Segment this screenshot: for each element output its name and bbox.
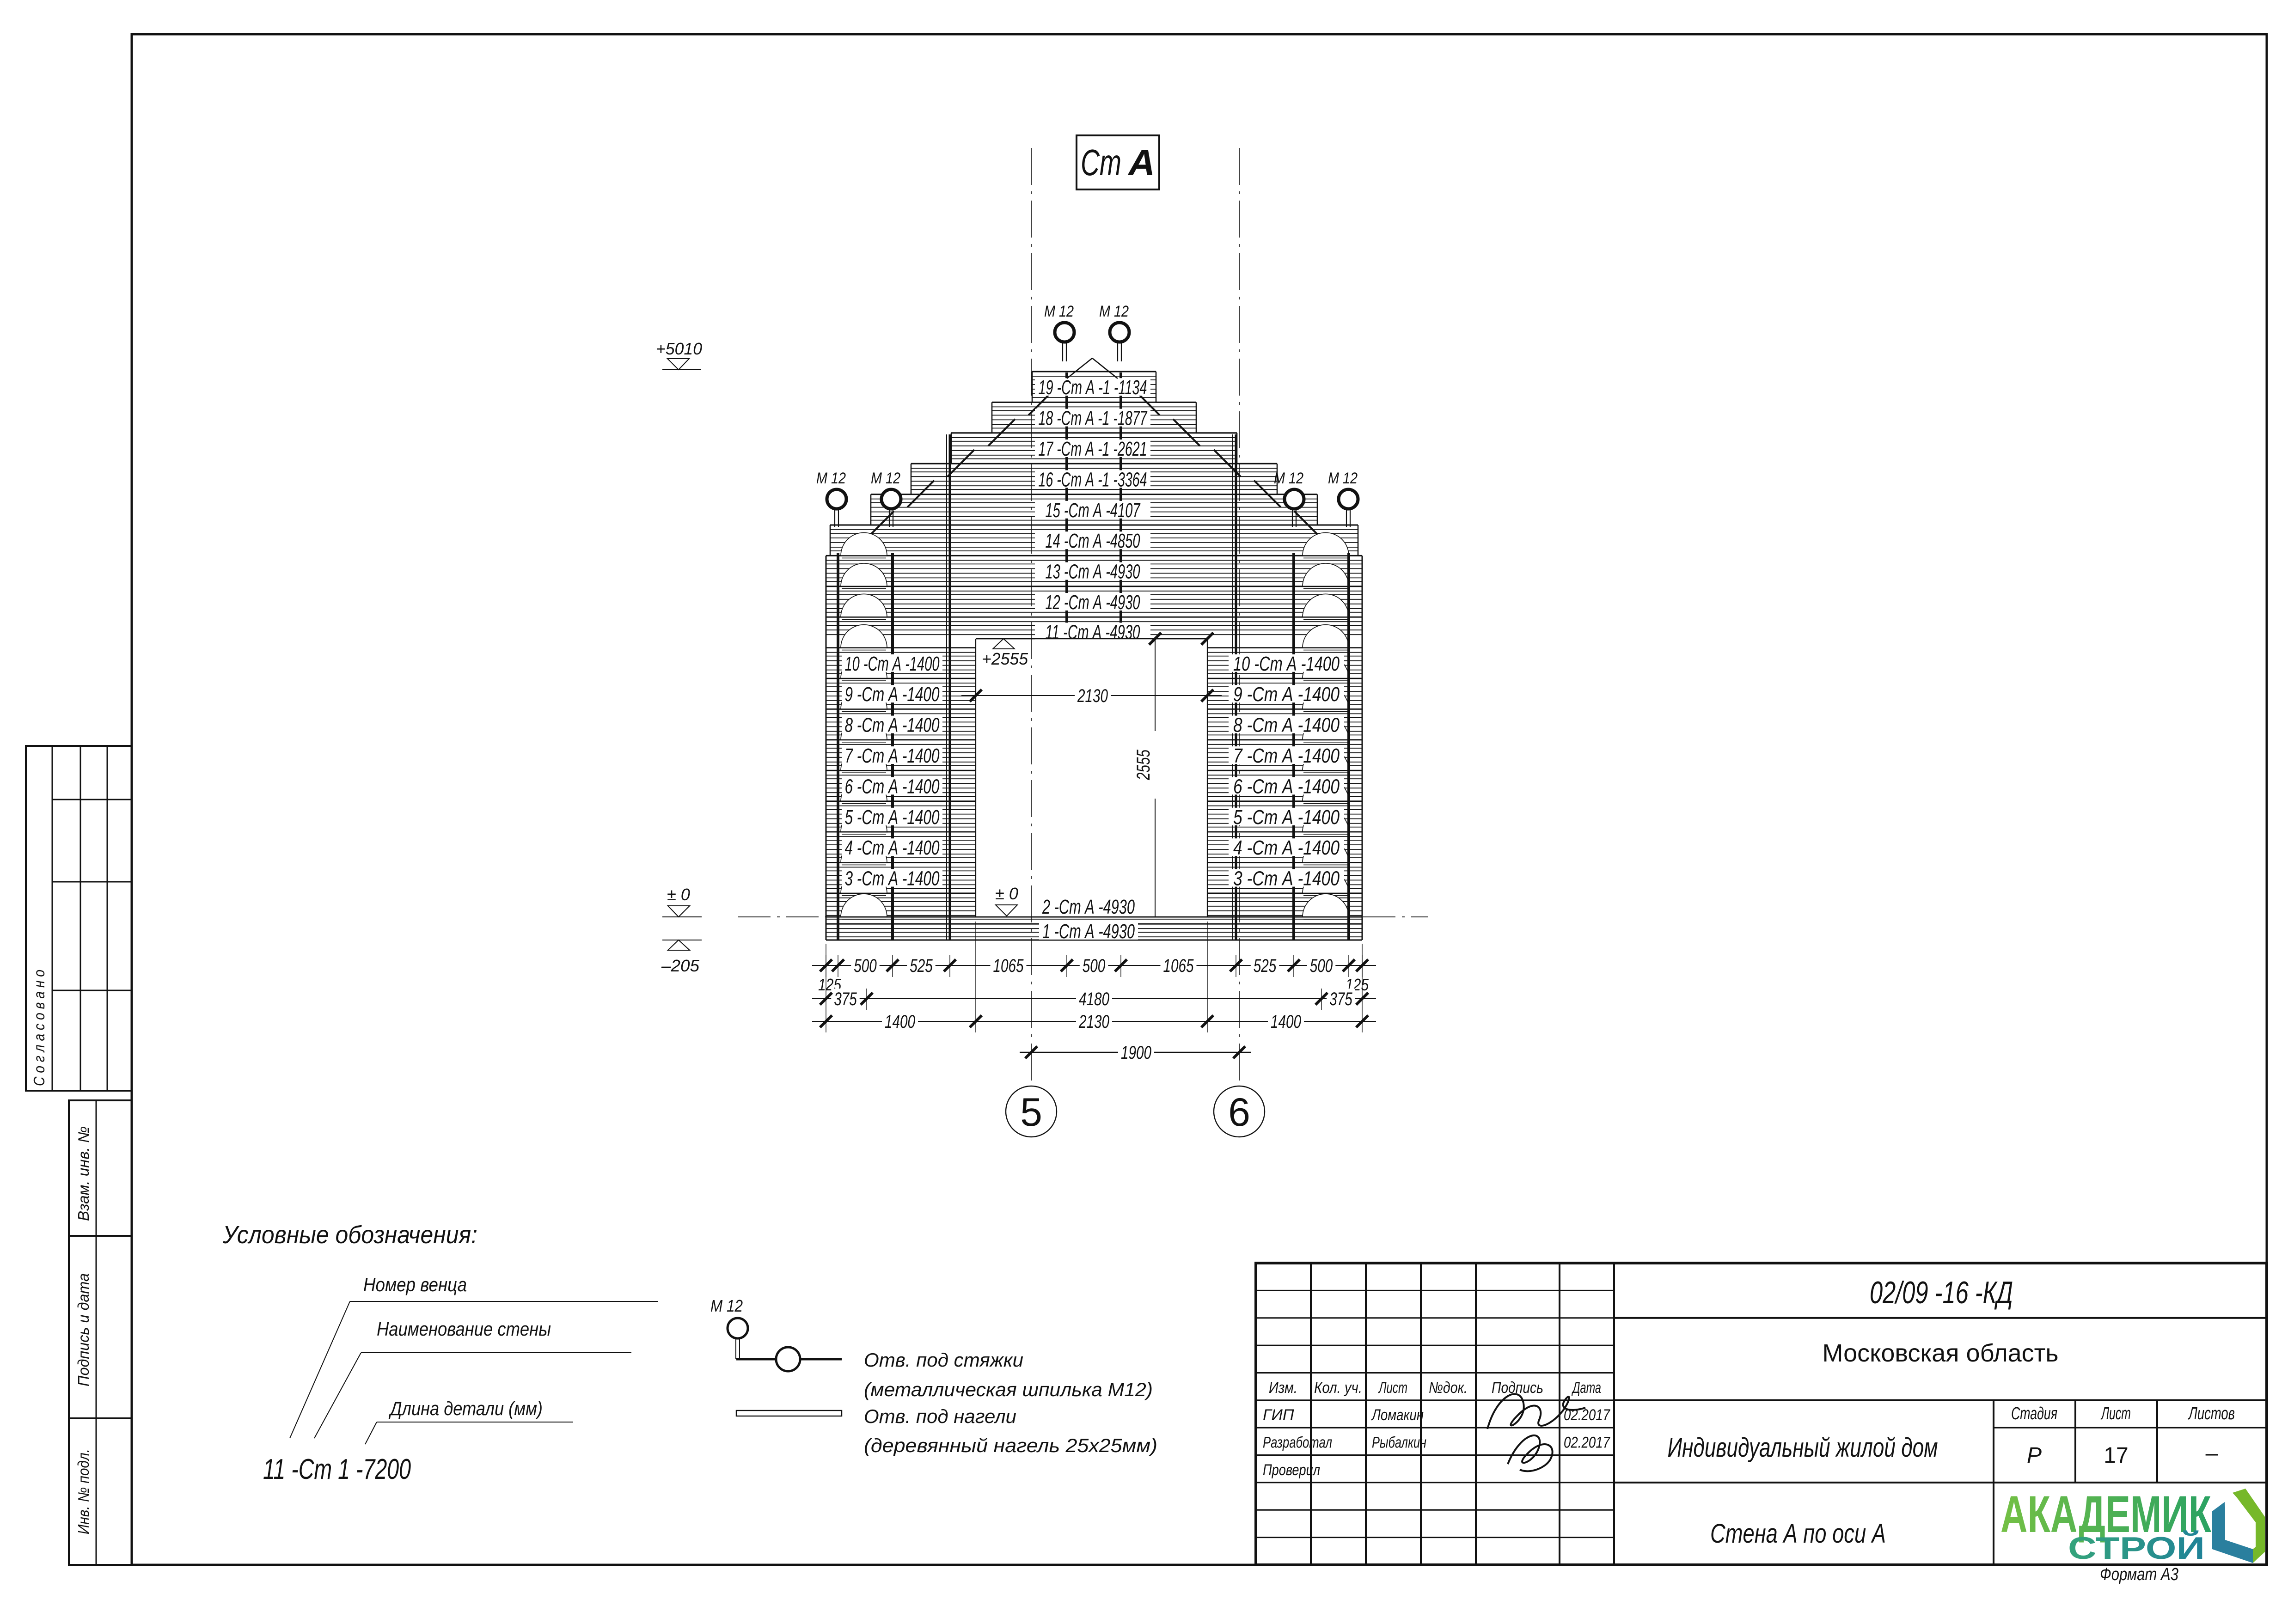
- svg-text:375: 375: [834, 989, 857, 1009]
- svg-text:18 -Ст А -1 -1877: 18 -Ст А -1 -1877: [1039, 407, 1148, 430]
- svg-text:8 -Ст А -1400: 8 -Ст А -1400: [845, 714, 940, 737]
- svg-text:2130: 2130: [1077, 686, 1108, 706]
- svg-text:5: 5: [1020, 1090, 1042, 1135]
- svg-text:7 -Ст А -1400: 7 -Ст А -1400: [845, 745, 940, 767]
- svg-text:6 -Ст А -1400: 6 -Ст А -1400: [845, 775, 940, 798]
- svg-text:М 12: М 12: [710, 1296, 743, 1315]
- svg-text:3 -Ст А -1400: 3 -Ст А -1400: [1233, 867, 1340, 890]
- svg-text:Дата: Дата: [1571, 1379, 1601, 1397]
- svg-text:Изм.: Изм.: [1269, 1379, 1297, 1397]
- svg-text:12 -Ст А -4930: 12 -Ст А -4930: [1046, 591, 1140, 614]
- svg-text:–205: –205: [661, 956, 700, 975]
- svg-text:№док.: №док.: [1429, 1379, 1468, 1397]
- svg-text:+5010: +5010: [656, 339, 702, 358]
- svg-text:Листов: Листов: [2188, 1404, 2235, 1423]
- svg-text:19 -Ст А -1 -1134: 19 -Ст А -1 -1134: [1039, 376, 1147, 399]
- svg-text:1065: 1065: [993, 956, 1024, 976]
- svg-text:02/09 -16 -КД: 02/09 -16 -КД: [1870, 1275, 2013, 1310]
- svg-text:14 -Ст А -4850: 14 -Ст А -4850: [1046, 530, 1140, 552]
- svg-text:+2555: +2555: [982, 649, 1028, 668]
- svg-text:8 -Ст А -1400: 8 -Ст А -1400: [1233, 714, 1340, 737]
- svg-text:± 0: ± 0: [667, 885, 690, 904]
- svg-text:Р: Р: [2027, 1443, 2042, 1468]
- svg-text:Формат А3: Формат А3: [2100, 1565, 2178, 1584]
- svg-text:4180: 4180: [1079, 989, 1109, 1009]
- svg-text:Стена А по оси А: Стена А по оси А: [1710, 1519, 1886, 1549]
- svg-text:1400: 1400: [885, 1012, 915, 1032]
- svg-text:6 -Ст А -1400: 6 -Ст А -1400: [1233, 775, 1340, 798]
- svg-text:1 -Ст А -4930: 1 -Ст А -4930: [1042, 920, 1135, 943]
- svg-text:Ломакин: Ломакин: [1371, 1406, 1424, 1424]
- svg-text:(деревянный нагель 25х25мм): (деревянный нагель 25х25мм): [864, 1435, 1157, 1456]
- svg-text:11 -Ст А -4930: 11 -Ст А -4930: [1046, 621, 1140, 643]
- svg-text:13 -Ст А -4930: 13 -Ст А -4930: [1046, 561, 1140, 583]
- svg-text:11 -Ст 1 -7200: 11 -Ст 1 -7200: [263, 1453, 411, 1485]
- svg-text:500: 500: [854, 956, 877, 976]
- svg-text:М 12: М 12: [1044, 303, 1074, 320]
- svg-text:М 12: М 12: [816, 470, 846, 487]
- svg-text:М 12: М 12: [1328, 470, 1358, 487]
- svg-text:1065: 1065: [1163, 956, 1194, 976]
- svg-text:1900: 1900: [1121, 1043, 1151, 1063]
- svg-text:Лист: Лист: [1378, 1379, 1407, 1397]
- svg-text:СТРОЙ: СТРОЙ: [2068, 1530, 2205, 1566]
- svg-text:Разработал: Разработал: [1263, 1434, 1332, 1452]
- svg-text:Отв. под стяжки: Отв. под стяжки: [864, 1349, 1023, 1371]
- svg-text:Рыбалкин: Рыбалкин: [1372, 1434, 1426, 1452]
- svg-text:375: 375: [1329, 989, 1352, 1009]
- svg-text:Взам. инв. №: Взам. инв. №: [75, 1126, 92, 1221]
- svg-text:С о г л а с о в а н о: С о г л а с о в а н о: [31, 970, 48, 1086]
- svg-text:(металлическая шпилька М12): (металлическая шпилька М12): [864, 1379, 1153, 1400]
- svg-text:Номер венца: Номер венца: [363, 1274, 467, 1295]
- svg-text:М 12: М 12: [871, 470, 900, 487]
- svg-text:5 -Ст А -1400: 5 -Ст А -1400: [1233, 806, 1340, 829]
- svg-text:2555: 2555: [1133, 749, 1154, 780]
- svg-text:Инв. № подл.: Инв. № подл.: [75, 1449, 92, 1534]
- svg-text:10 -Ст А -1400: 10 -Ст А -1400: [845, 653, 940, 675]
- svg-text:4 -Ст А -1400: 4 -Ст А -1400: [845, 836, 940, 859]
- svg-text:500: 500: [1083, 956, 1106, 976]
- svg-text:Ст: Ст: [1081, 142, 1121, 183]
- svg-text:Московская область: Московская область: [1823, 1339, 2059, 1367]
- svg-text:–: –: [2206, 1441, 2218, 1465]
- svg-text:Отв. под нагели: Отв. под нагели: [864, 1405, 1016, 1427]
- svg-text:2130: 2130: [1078, 1012, 1109, 1032]
- svg-text:525: 525: [910, 956, 933, 976]
- svg-text:М 12: М 12: [1099, 303, 1129, 320]
- svg-text:Проверил: Проверил: [1263, 1461, 1320, 1479]
- svg-text:1400: 1400: [1271, 1012, 1301, 1032]
- svg-text:Стадия: Стадия: [2011, 1404, 2057, 1423]
- svg-text:6: 6: [1228, 1090, 1250, 1135]
- svg-text:7 -Ст А -1400: 7 -Ст А -1400: [1233, 745, 1340, 767]
- svg-text:15 -Ст А -4107: 15 -Ст А -4107: [1046, 499, 1141, 522]
- svg-text:Подпись и дата: Подпись и дата: [75, 1273, 92, 1386]
- svg-text:Длина детали (мм): Длина детали (мм): [389, 1398, 543, 1419]
- svg-text:16 -Ст А -1 -3364: 16 -Ст А -1 -3364: [1039, 468, 1147, 491]
- svg-text:17 -Ст А -1 -2621: 17 -Ст А -1 -2621: [1039, 438, 1147, 460]
- svg-text:Условные обозначения:: Условные обозначения:: [222, 1221, 477, 1249]
- svg-text:М 12: М 12: [1274, 470, 1303, 487]
- svg-text:Наименование стены: Наименование стены: [377, 1318, 551, 1340]
- svg-text:17: 17: [2104, 1443, 2128, 1468]
- svg-text:525: 525: [1254, 956, 1277, 976]
- svg-text:± 0: ± 0: [995, 884, 1018, 903]
- svg-text:4 -Ст А -1400: 4 -Ст А -1400: [1233, 836, 1340, 859]
- svg-text:5 -Ст А -1400: 5 -Ст А -1400: [845, 806, 940, 829]
- svg-text:10 -Ст А -1400: 10 -Ст А -1400: [1233, 653, 1340, 675]
- svg-text:02.2017: 02.2017: [1564, 1434, 1610, 1452]
- svg-text:9 -Ст А -1400: 9 -Ст А -1400: [1233, 683, 1340, 706]
- svg-text:2 -Ст А -4930: 2 -Ст А -4930: [1042, 896, 1135, 918]
- svg-text:ГИП: ГИП: [1263, 1406, 1294, 1424]
- svg-text:3 -Ст А -1400: 3 -Ст А -1400: [845, 867, 940, 890]
- svg-text:9 -Ст А -1400: 9 -Ст А -1400: [845, 683, 940, 706]
- svg-text:500: 500: [1310, 956, 1333, 976]
- svg-text:Индивидуальный жилой дом: Индивидуальный жилой дом: [1668, 1433, 1938, 1463]
- svg-text:Кол. уч.: Кол. уч.: [1314, 1379, 1362, 1397]
- svg-text:Лист: Лист: [2100, 1404, 2131, 1423]
- svg-text:А: А: [1127, 142, 1155, 183]
